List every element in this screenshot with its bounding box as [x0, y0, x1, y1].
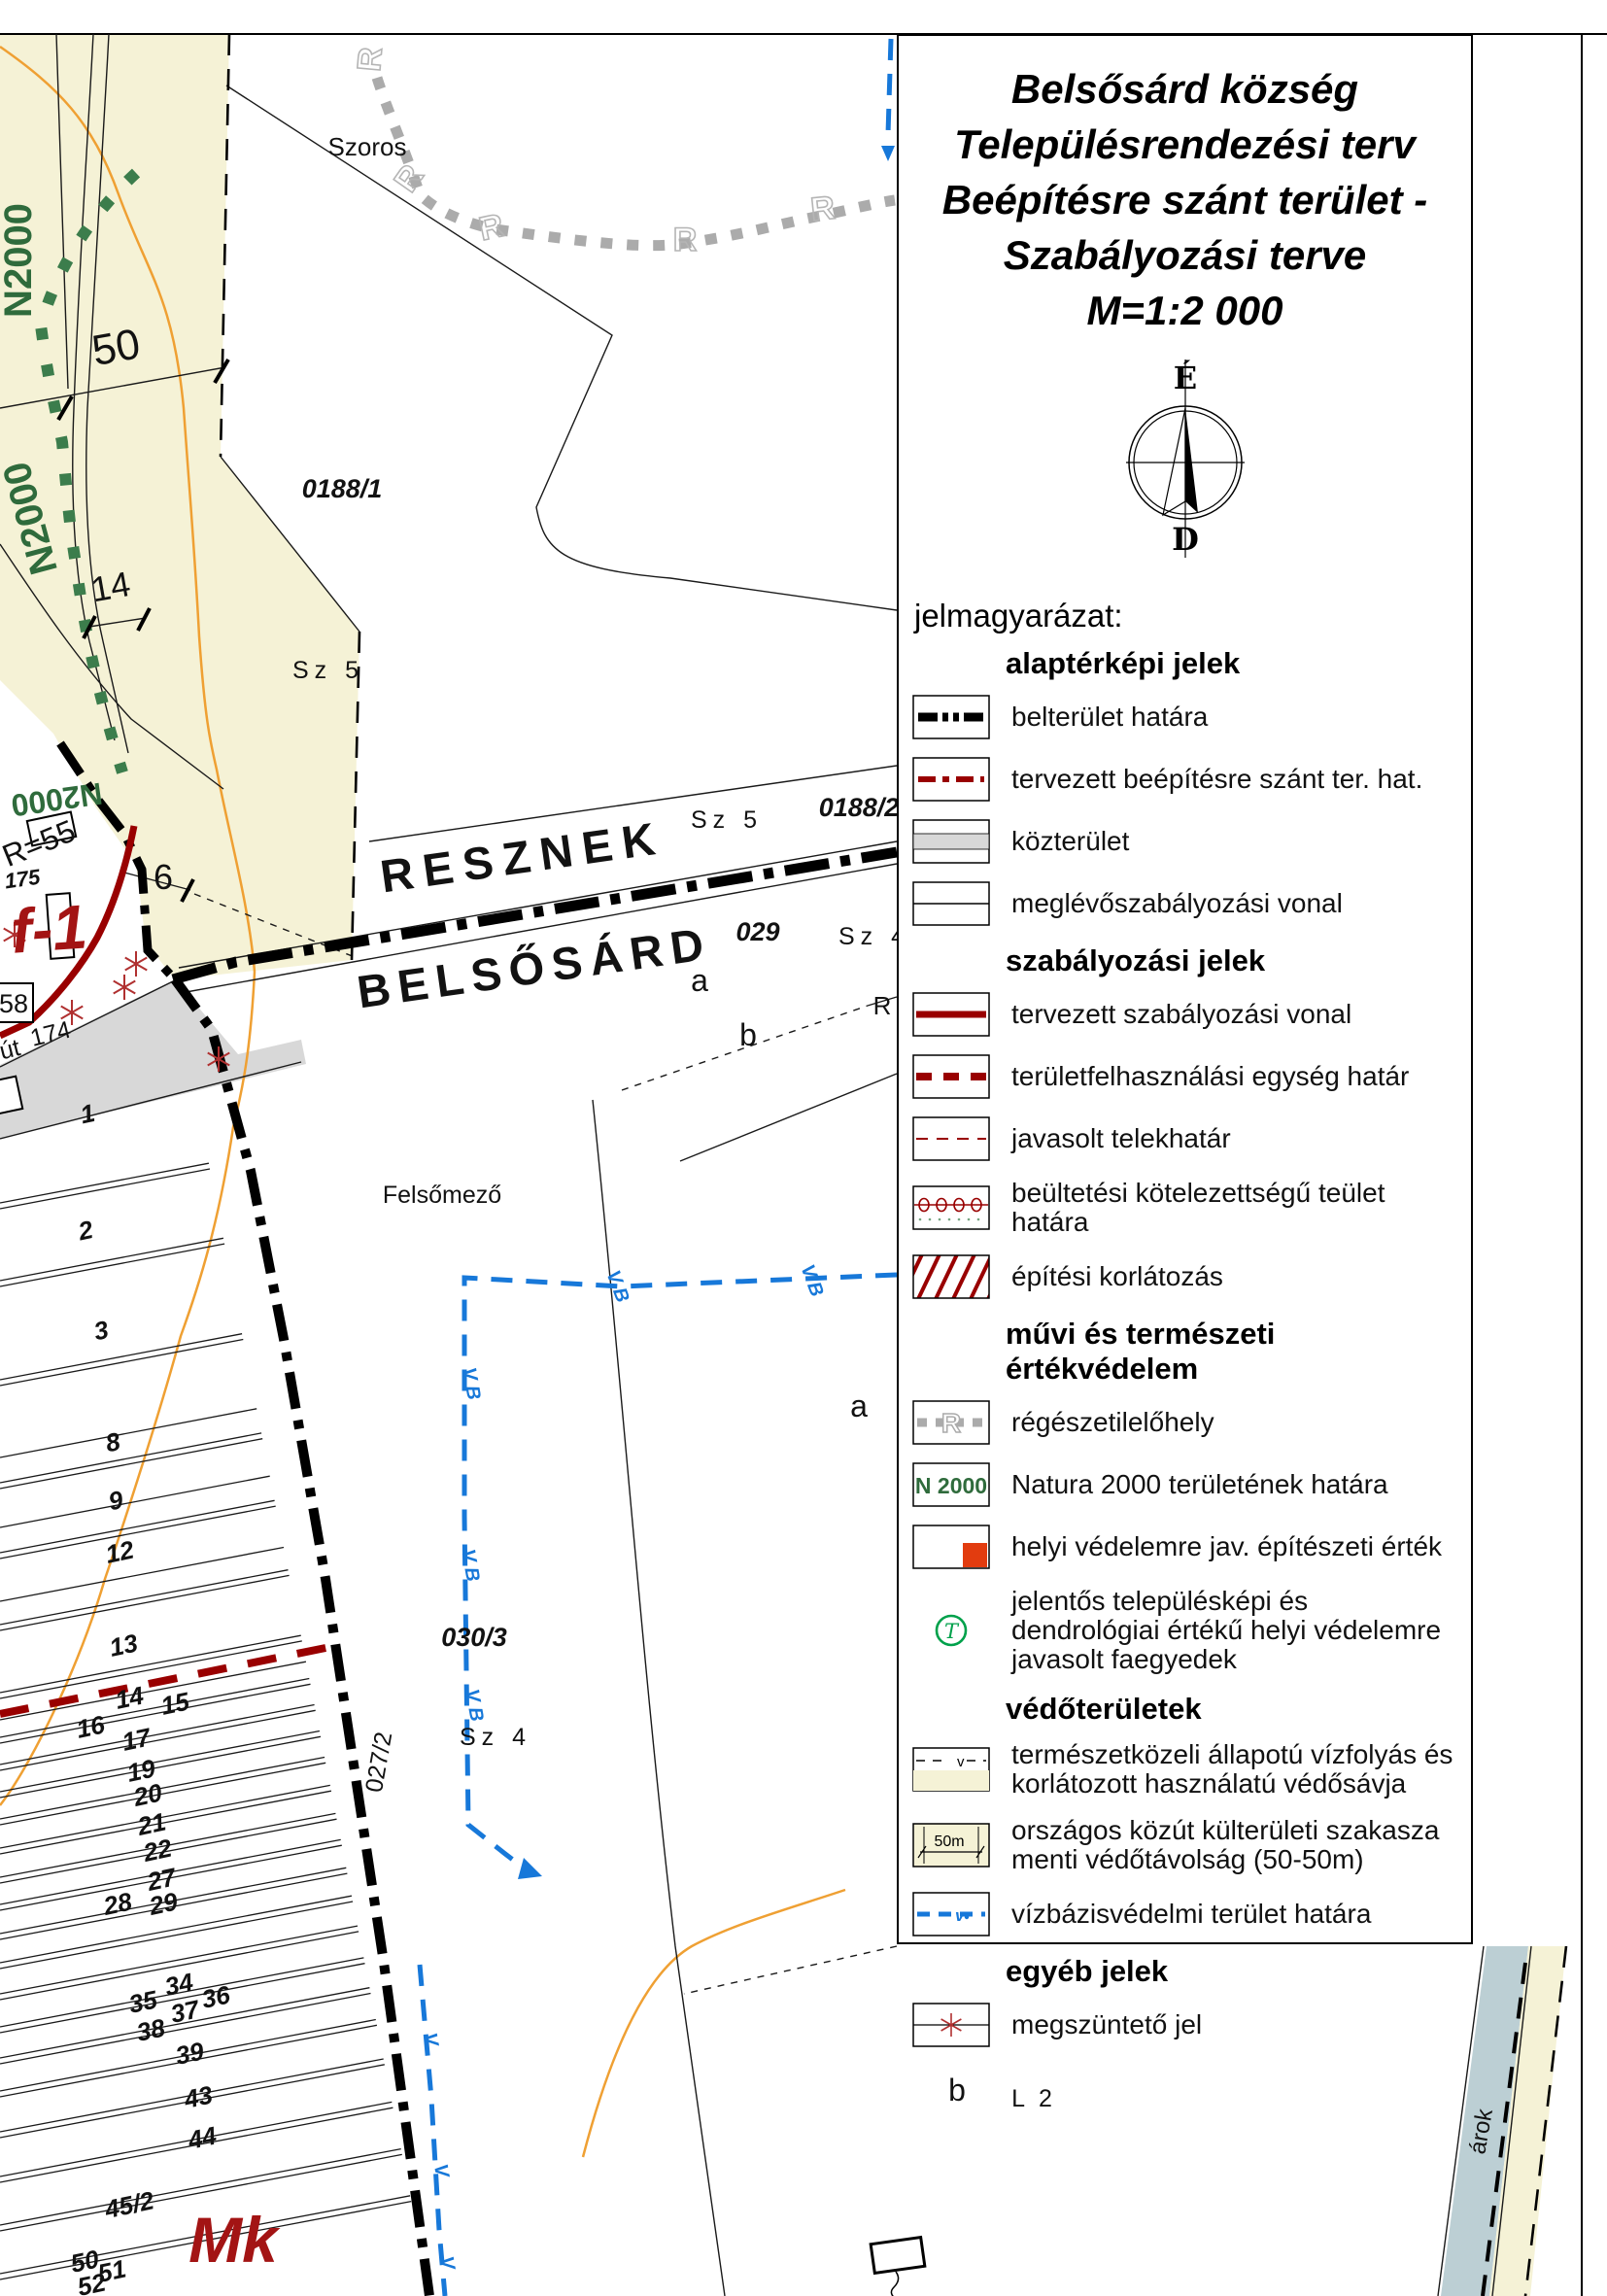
- map-label: 17: [120, 1722, 154, 1757]
- legend-item-label: megszüntető jel: [1011, 2010, 1202, 2039]
- map-label: f-1: [9, 891, 89, 966]
- legend-item-label: közterület: [1011, 827, 1129, 856]
- legend-swatch-beultetesi: [912, 1185, 990, 1230]
- map-label: V B: [457, 1548, 483, 1584]
- waterbase-arrow-top: [881, 146, 895, 161]
- legend-swatch-terv_beep: [912, 757, 990, 802]
- page: { "title": {"lines": ["Belsősárd község"…: [0, 0, 1607, 2296]
- map-title-line: Szabályozási terve: [899, 227, 1471, 283]
- legend-item-label: belterület határa: [1011, 703, 1208, 732]
- legend-swatch-faegyed: T: [912, 1608, 990, 1653]
- legend-sections: alaptérképi jelekbelterület határatervez…: [899, 646, 1471, 2047]
- legend-item-label: beültetési kötelezettségű teület határa: [1011, 1179, 1453, 1237]
- map-title-line: M=1:2 000: [899, 283, 1471, 338]
- map-title: Belsősárd községTelepülésrendezési tervB…: [899, 61, 1471, 338]
- road-axis-orange-2: [583, 1890, 845, 2157]
- legend-item-label: tervezett beépítésre szánt ter. hat.: [1011, 765, 1422, 794]
- waterbase-boundary: [420, 39, 897, 2296]
- map-label: 58: [0, 989, 28, 1018]
- legend-item: helyi védelemre jav. építészeti érték: [912, 1525, 1471, 1569]
- legend-item-label: területfelhasználási egység határ: [1011, 1062, 1409, 1091]
- map-label: Szoros: [328, 132, 407, 161]
- legend-swatch-epitesi: [912, 1254, 990, 1299]
- legend-section-heading: művi és természeti értékvédelem: [1006, 1317, 1471, 1387]
- legend-item: meglévőszabályozási vonal: [912, 881, 1471, 926]
- map-label: 36: [199, 1979, 233, 2013]
- legend-item: belterület határa: [912, 695, 1471, 739]
- legend-item-label: természetközeli állapotú vízfolyás és ko…: [1011, 1740, 1453, 1799]
- map-label: Sz 5: [292, 657, 364, 684]
- svg-text:R: R: [351, 46, 390, 73]
- map-label: L 2: [1011, 2085, 1056, 2112]
- map-label: 16: [74, 1709, 108, 1743]
- map-label: N2000: [0, 203, 40, 318]
- legend-swatch-javasolt: [912, 1116, 990, 1161]
- map-label: 175: [3, 865, 43, 894]
- legend-item-label: meglévőszabályozási vonal: [1011, 889, 1343, 918]
- map-label: 13: [107, 1628, 141, 1662]
- map-label: b: [948, 2073, 966, 2108]
- legend-item: építési korlátozás: [912, 1254, 1471, 1299]
- svg-text:50m: 50m: [934, 1833, 964, 1850]
- legend-item-label: régészetilelőhely: [1011, 1408, 1214, 1437]
- legend-panel: Belsősárd községTelepülésrendezési tervB…: [897, 34, 1473, 1944]
- map-label: 3: [91, 1315, 112, 1346]
- map-label: 29: [146, 1886, 181, 1921]
- building-squiggle: [891, 2272, 898, 2296]
- legend-swatch-terv_szab: [912, 992, 990, 1037]
- legend-section-heading: egyéb jelek: [1006, 1954, 1471, 1989]
- map-label: 029: [735, 917, 779, 946]
- svg-text:v: v: [955, 1906, 966, 1925]
- legend-swatch-regeszeti: R: [912, 1400, 990, 1445]
- map-label: RESZNEK: [377, 811, 667, 902]
- map-label: 15: [158, 1686, 192, 1720]
- legend-section-heading: védőterületek: [1006, 1692, 1471, 1727]
- legend-swatch-kozut: 50m: [912, 1823, 990, 1868]
- map-label: 43: [181, 2079, 216, 2114]
- map-label: 39: [173, 2036, 207, 2070]
- map-label: V B: [458, 1366, 484, 1402]
- map-label: 50: [88, 320, 144, 375]
- svg-text:R: R: [809, 189, 837, 228]
- legend-item: N 2000Natura 2000 területének határa: [912, 1462, 1471, 1507]
- legend-item: területfelhasználási egység határ: [912, 1054, 1471, 1099]
- map-label: a: [850, 1388, 868, 1423]
- svg-text:R: R: [673, 222, 698, 258]
- legend-item-label: Natura 2000 területének határa: [1011, 1470, 1388, 1499]
- legend-item-label: országos közút külterületi szakasza ment…: [1011, 1816, 1453, 1874]
- legend-item-label: vízbázisvédelmi terület határa: [1011, 1900, 1371, 1929]
- map-label: 14: [88, 564, 134, 609]
- legend-item: megszüntető jel: [912, 2003, 1471, 2047]
- map-label: 14: [113, 1680, 147, 1714]
- map-label: V: [435, 2254, 459, 2273]
- legend-item: Tjelentős településképi és dendrológiai …: [912, 1587, 1471, 1674]
- legend-swatch-kozterulet: [912, 819, 990, 864]
- map-label: b: [739, 1017, 757, 1052]
- map-label: 28: [100, 1886, 135, 1921]
- legend-item-label: javasolt telekhatár: [1011, 1124, 1231, 1153]
- legend-item: vvízbázisvédelmi terület határa: [912, 1892, 1471, 1936]
- map-label: Sz 5: [691, 806, 763, 834]
- map-title-line: Településrendezési terv: [899, 117, 1471, 172]
- map-label: 44: [185, 2120, 220, 2155]
- legend-swatch-helyi: [912, 1525, 990, 1569]
- legend-item-label: helyi védelemre jav. építészeti érték: [1011, 1532, 1442, 1561]
- map-label: V B: [602, 1268, 633, 1306]
- legend-heading: jelmagyarázat:: [914, 598, 1471, 634]
- legend-swatch-belterulet: [912, 695, 990, 739]
- svg-text:R: R: [387, 158, 430, 199]
- map-label: 0188/2: [819, 793, 900, 822]
- svg-text:R: R: [476, 207, 507, 248]
- map-title-line: Belsősárd község: [899, 61, 1471, 117]
- legend-item: javasolt telekhatár: [912, 1116, 1471, 1161]
- map-label: V: [429, 2162, 453, 2180]
- svg-text:v: v: [957, 1754, 965, 1770]
- legend-swatch-terulet_egyseg: [912, 1054, 990, 1099]
- legend-item-label: jelentős településképi és dendrológiai é…: [1011, 1587, 1453, 1674]
- legend-item: Rrégészetilelőhely: [912, 1400, 1471, 1445]
- map-label: V: [419, 2031, 442, 2049]
- map-label: 12: [103, 1534, 137, 1568]
- map-label: 030/3: [441, 1623, 507, 1652]
- map-label: Sz 4: [460, 1724, 531, 1751]
- legend-item: 50mországos közút külterületi szakasza m…: [912, 1816, 1471, 1874]
- map-label: 027/2: [360, 1730, 397, 1794]
- map-title-line: Beépítésre szánt terület -: [899, 172, 1471, 227]
- legend-item: beültetési kötelezettségű teület határa: [912, 1179, 1471, 1237]
- svg-text:N 2000: N 2000: [915, 1473, 987, 1498]
- legend-swatch-vizfolyas: v: [912, 1747, 990, 1792]
- legend-item: közterület: [912, 819, 1471, 864]
- map-label: 9: [106, 1485, 126, 1516]
- legend-item: tervezett szabályozási vonal: [912, 992, 1471, 1037]
- map-label: 45/2: [101, 2185, 156, 2224]
- legend-swatch-natura: N 2000: [912, 1462, 990, 1507]
- map-label: 38: [134, 2012, 168, 2046]
- legend-section-heading: szabályozási jelek: [1006, 943, 1471, 978]
- compass: É D: [1112, 348, 1258, 574]
- legend-item: tervezett beépítésre szánt ter. hat.: [912, 757, 1471, 802]
- map-label: a: [691, 963, 708, 998]
- compass-rose: É D: [1112, 348, 1258, 569]
- map-label: 0188/1: [302, 474, 383, 503]
- svg-text:R: R: [941, 1408, 961, 1438]
- compass-south-label: D: [1172, 521, 1199, 558]
- legend-swatch-megszunteto: [912, 2003, 990, 2047]
- map-label: Felsőmező: [383, 1182, 501, 1209]
- legend-item-label: tervezett szabályozási vonal: [1011, 1000, 1351, 1029]
- legend-section-heading: alaptérképi jelek: [1006, 646, 1471, 681]
- map-label: V B: [797, 1262, 828, 1300]
- legend-swatch-vizbazis: v: [912, 1892, 990, 1936]
- svg-text:T: T: [944, 1620, 960, 1643]
- map-label: Mk: [188, 2204, 281, 2276]
- map-label: 2: [75, 1215, 96, 1247]
- map-label: 8: [103, 1426, 123, 1457]
- legend-item: vtermészetközeli állapotú vízfolyás és k…: [912, 1740, 1471, 1799]
- waterbase-arrow: [518, 1858, 542, 1879]
- map-label: út: [0, 1034, 23, 1065]
- map-label: V B: [461, 1688, 487, 1724]
- legend-item-label: építési korlátozás: [1011, 1262, 1223, 1291]
- map-label: 37: [168, 1994, 203, 2029]
- map-label: R: [873, 991, 892, 1020]
- legend-swatch-meglevo: [912, 881, 990, 926]
- map-label: 6: [154, 857, 173, 897]
